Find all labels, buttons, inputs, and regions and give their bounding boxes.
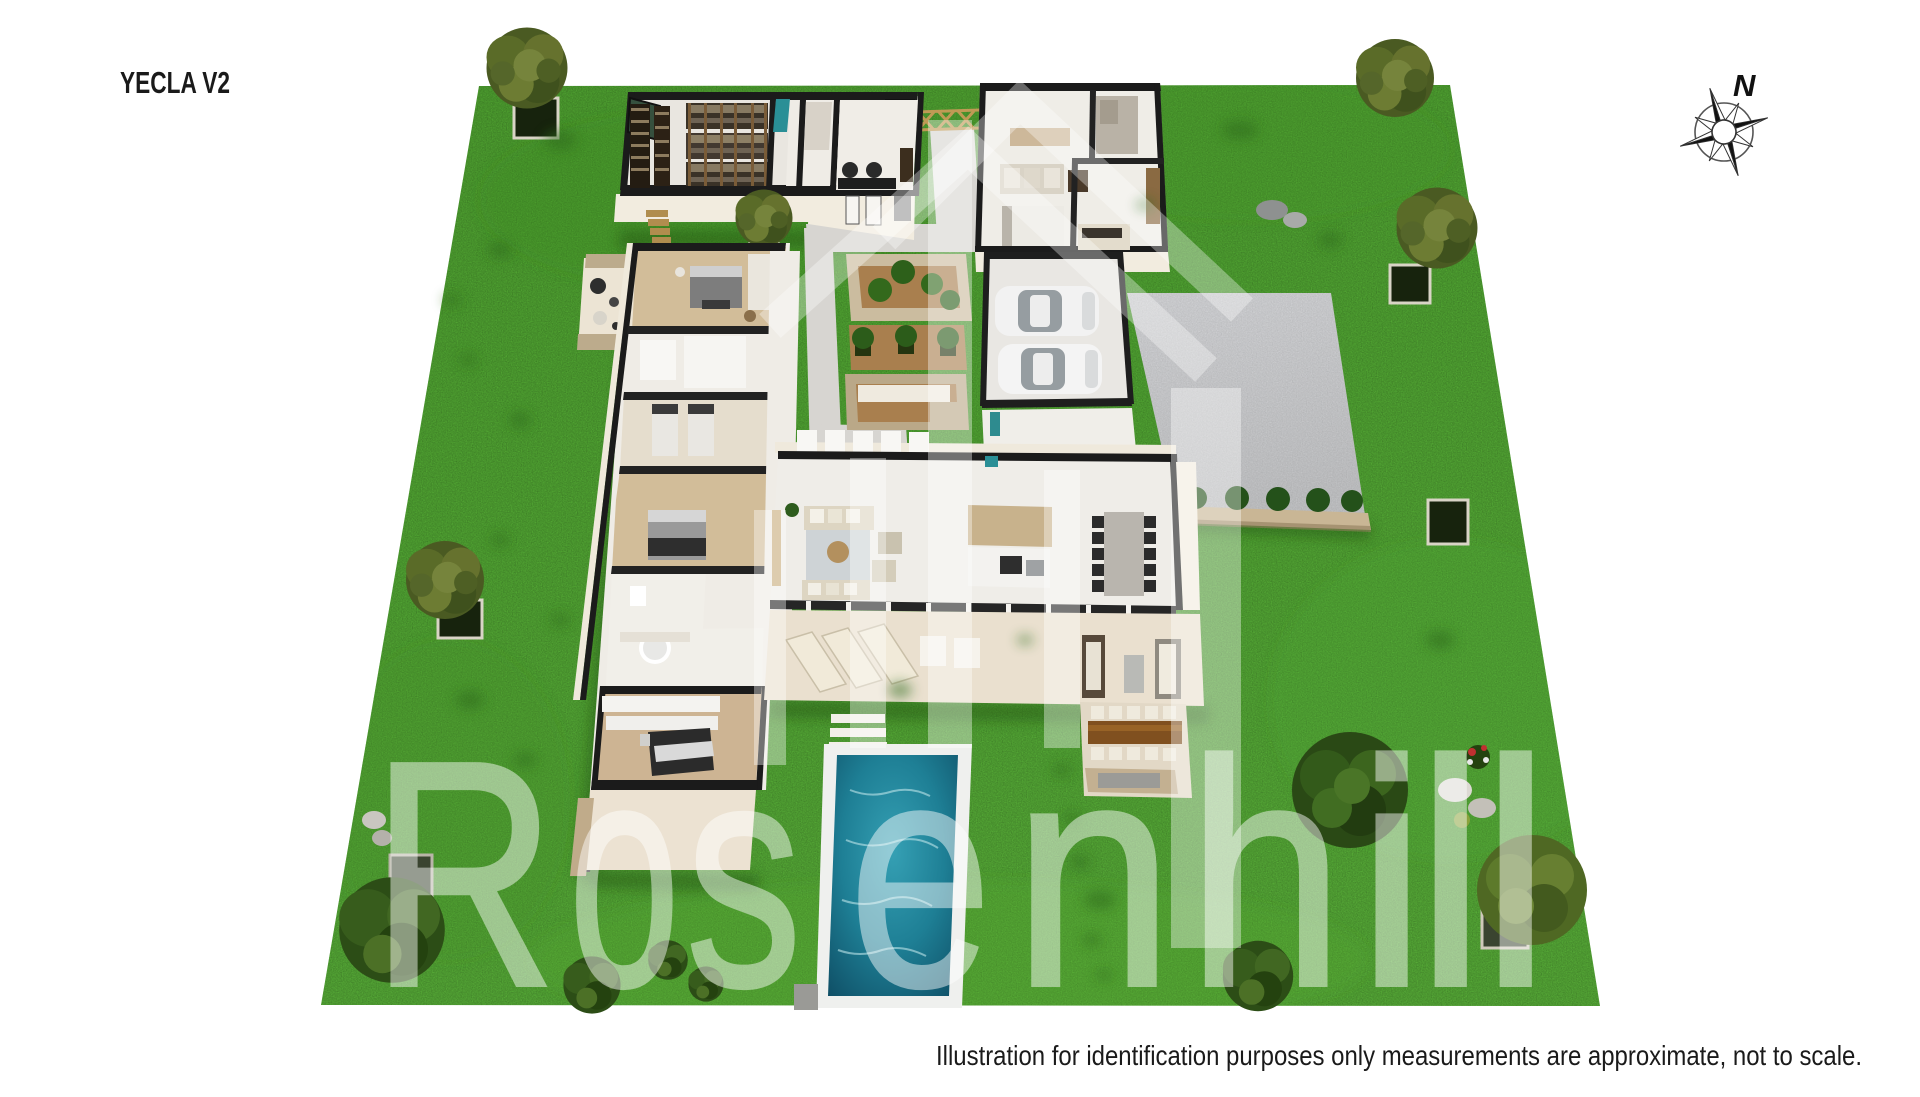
svg-text:n: n (1013, 695, 1174, 1053)
svg-text:e: e (849, 695, 992, 1054)
svg-text:l: l (1480, 695, 1551, 1054)
svg-text:Illustration for identificatio: Illustration for identification purposes… (936, 1040, 1862, 1071)
svg-text:YECLA V2: YECLA V2 (120, 65, 230, 100)
svg-text:N: N (1733, 68, 1756, 103)
svg-text:l: l (1415, 695, 1486, 1054)
svg-text:s: s (686, 696, 802, 1054)
svg-text:h: h (1187, 695, 1344, 1054)
svg-text:R: R (371, 695, 556, 1054)
svg-text:o: o (569, 694, 680, 1053)
